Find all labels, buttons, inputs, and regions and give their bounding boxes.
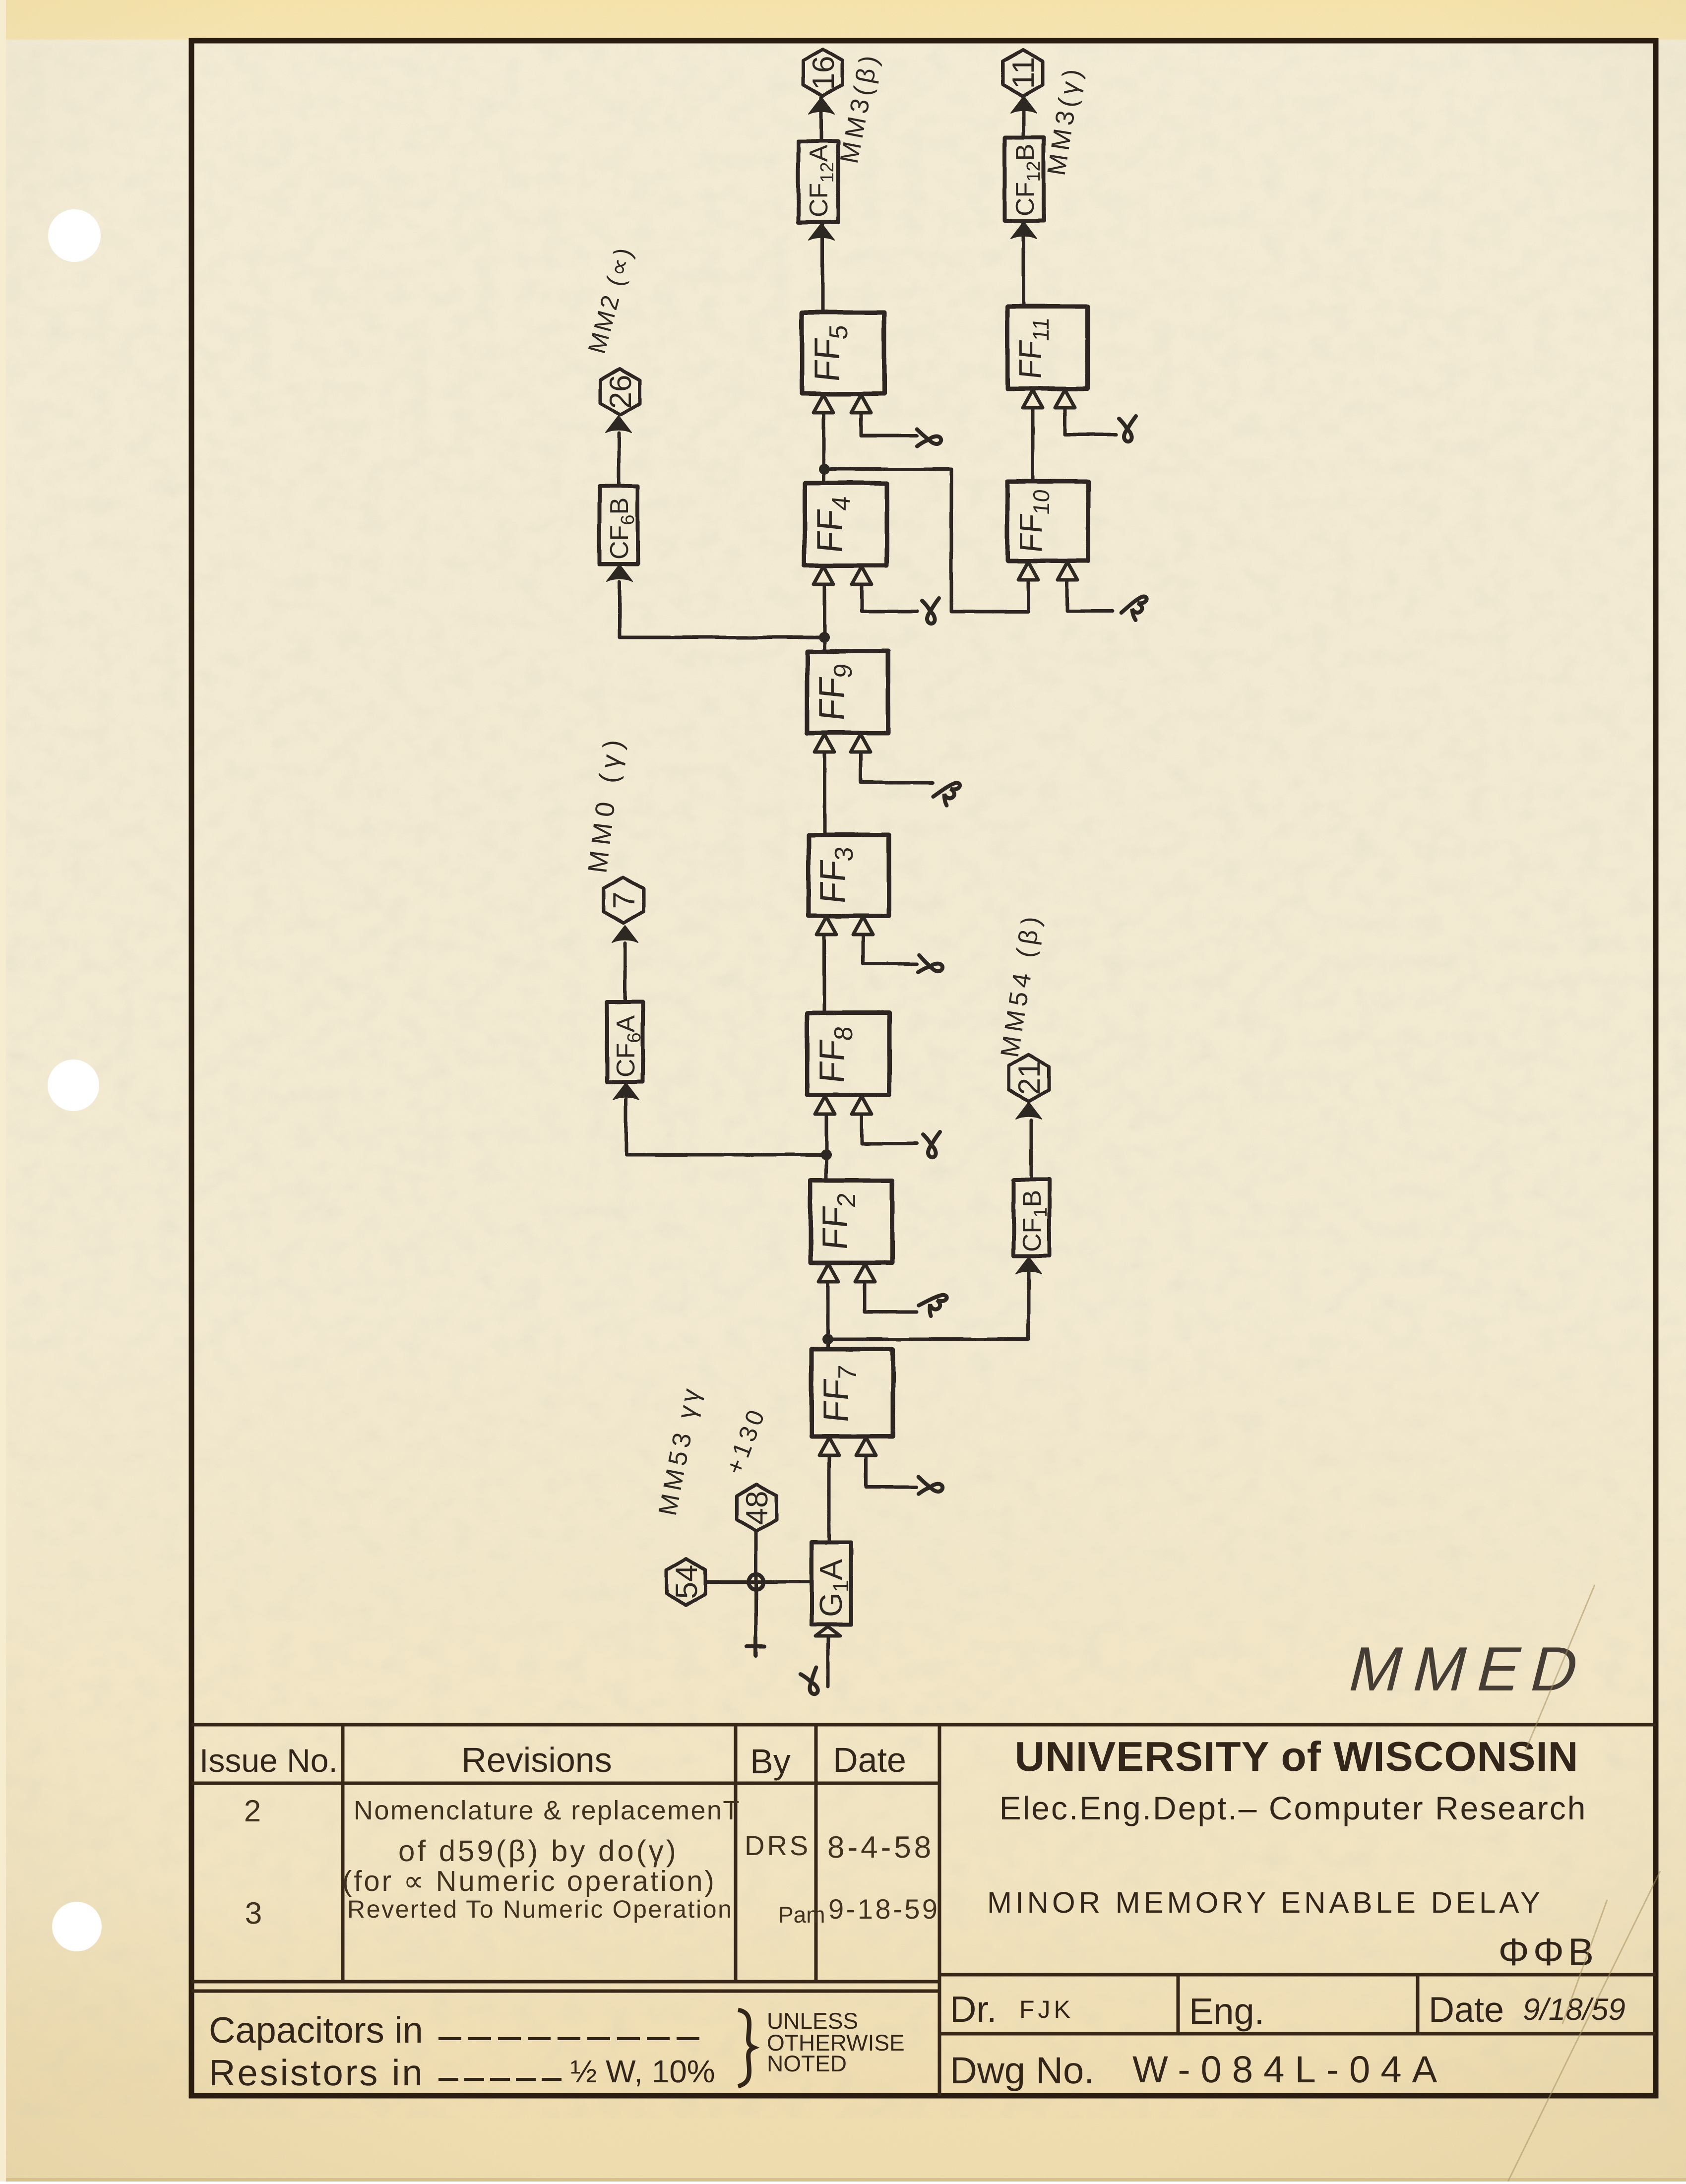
svg-text:Capacitors in: Capacitors in <box>209 2009 423 2051</box>
svg-text:Pam: Pam <box>778 1902 825 1928</box>
svg-text:11: 11 <box>1006 57 1041 89</box>
svg-text:Date: Date <box>833 1741 906 1779</box>
svg-text:By: By <box>750 1742 791 1781</box>
svg-text:54: 54 <box>670 1565 704 1599</box>
svg-text:16: 16 <box>807 56 841 90</box>
svg-text:Dr.: Dr. <box>950 1989 997 2030</box>
svg-text:½ W, 10%: ½ W, 10% <box>570 2054 715 2089</box>
svg-text:CF6A: CF6A <box>612 1015 645 1077</box>
svg-text:of d59(β) by do(γ): of d59(β) by do(γ) <box>398 1834 679 1868</box>
svg-text:MINOR MEMORY ENABLE DELAY: MINOR MEMORY ENABLE DELAY <box>987 1886 1544 1919</box>
svg-text:9/18/59: 9/18/59 <box>1523 1993 1625 2027</box>
svg-text:21: 21 <box>1012 1061 1047 1095</box>
svg-text:3: 3 <box>245 1896 262 1931</box>
svg-text:FJK: FJK <box>1019 1996 1074 2023</box>
svg-text:7: 7 <box>607 892 641 909</box>
svg-text:Issue No.: Issue No. <box>199 1742 338 1779</box>
svg-text:Resistors in: Resistors in <box>209 2052 425 2093</box>
svg-text:W-084L-04A: W-084L-04A <box>1132 2049 1447 2091</box>
svg-text:26: 26 <box>604 375 638 409</box>
svg-text:Eng.: Eng. <box>1189 1991 1264 2032</box>
svg-text:Reverted To Numeric Operation: Reverted To Numeric Operation <box>347 1895 733 1923</box>
svg-text:8-4-58: 8-4-58 <box>827 1830 934 1865</box>
svg-text:UNIVERSITY of WISCONSIN: UNIVERSITY of WISCONSIN <box>1015 1733 1579 1780</box>
svg-text:2: 2 <box>244 1794 261 1828</box>
svg-text:Dwg No.: Dwg No. <box>950 2050 1094 2092</box>
svg-text:48: 48 <box>740 1491 774 1525</box>
svg-text:Nomenclature & replacemenT: Nomenclature & replacemenT <box>354 1796 741 1825</box>
svg-text:Revisions: Revisions <box>461 1741 612 1779</box>
svg-text:(for ∝ Numeric operation): (for ∝ Numeric operation) <box>342 1865 716 1897</box>
svg-text:DRS: DRS <box>745 1830 811 1861</box>
svg-text:NOTED: NOTED <box>767 2051 847 2076</box>
svg-text:CF1B: CF1B <box>1018 1190 1051 1252</box>
svg-text:Date: Date <box>1429 1990 1504 2030</box>
svg-text:Elec.Eng.Dept.– Computer Resea: Elec.Eng.Dept.– Computer Research <box>999 1790 1587 1826</box>
svg-text:9-18-59: 9-18-59 <box>828 1893 940 1925</box>
svg-text:CF6B: CF6B <box>605 498 638 560</box>
